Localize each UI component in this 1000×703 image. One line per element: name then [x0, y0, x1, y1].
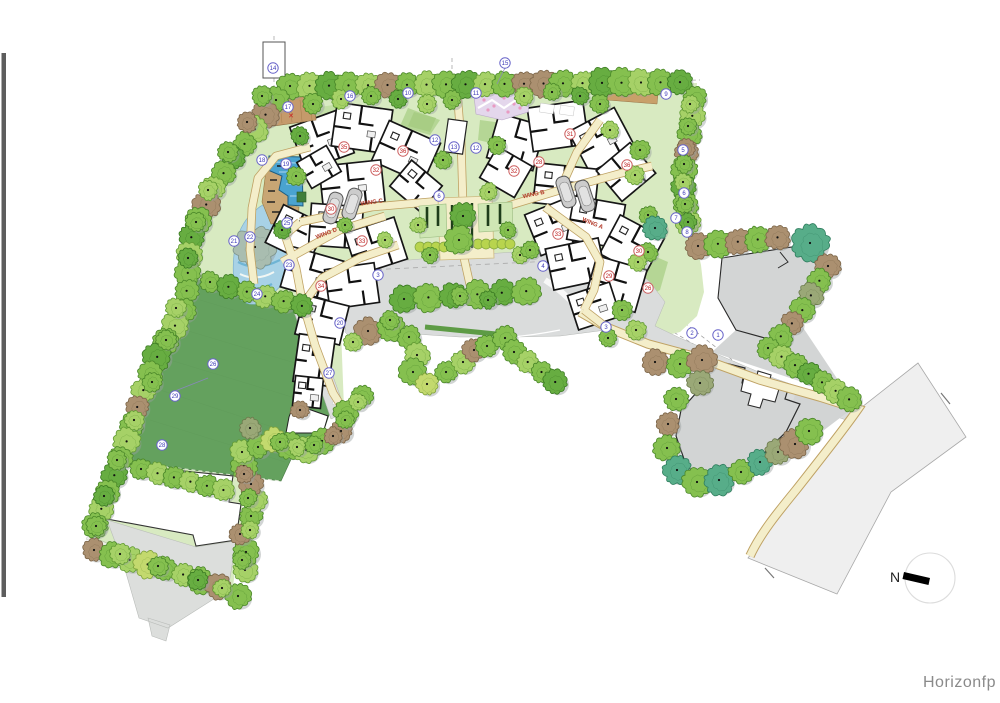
svg-text:19: 19	[283, 162, 290, 168]
svg-text:32: 32	[511, 169, 518, 175]
svg-text:30: 30	[636, 249, 643, 255]
svg-text:18: 18	[259, 158, 266, 164]
svg-text:20: 20	[337, 321, 344, 327]
svg-text:23: 23	[286, 263, 293, 269]
svg-text:15: 15	[502, 61, 509, 67]
svg-text:29: 29	[606, 274, 613, 280]
svg-text:10: 10	[405, 91, 412, 97]
svg-text:21: 21	[231, 239, 238, 245]
svg-text:34: 34	[318, 284, 325, 290]
svg-text:24: 24	[254, 292, 261, 298]
svg-text:14: 14	[270, 66, 277, 72]
svg-text:17: 17	[285, 105, 292, 111]
svg-text:16: 16	[347, 94, 354, 100]
svg-text:12: 12	[432, 138, 439, 144]
svg-text:30: 30	[328, 207, 335, 213]
svg-text:36: 36	[624, 163, 631, 169]
svg-text:29: 29	[172, 394, 179, 400]
svg-text:N: N	[890, 569, 900, 585]
svg-text:28: 28	[536, 160, 543, 166]
svg-text:Horizonfp: Horizonfp	[923, 674, 996, 691]
svg-text:13: 13	[451, 145, 458, 151]
svg-text:12: 12	[473, 146, 480, 152]
svg-text:11: 11	[473, 91, 480, 97]
svg-text:33: 33	[359, 239, 366, 245]
svg-text:27: 27	[326, 371, 333, 377]
svg-text:26: 26	[645, 286, 652, 292]
svg-text:25: 25	[284, 221, 291, 227]
svg-text:36: 36	[400, 149, 407, 155]
svg-text:28: 28	[159, 443, 166, 449]
svg-text:22: 22	[247, 235, 254, 241]
svg-text:✕: ✕	[288, 113, 294, 120]
svg-text:35: 35	[341, 145, 348, 151]
svg-text:33: 33	[555, 232, 562, 238]
svg-text:31: 31	[567, 132, 574, 138]
svg-text:32: 32	[373, 168, 380, 174]
svg-text:26: 26	[210, 362, 217, 368]
